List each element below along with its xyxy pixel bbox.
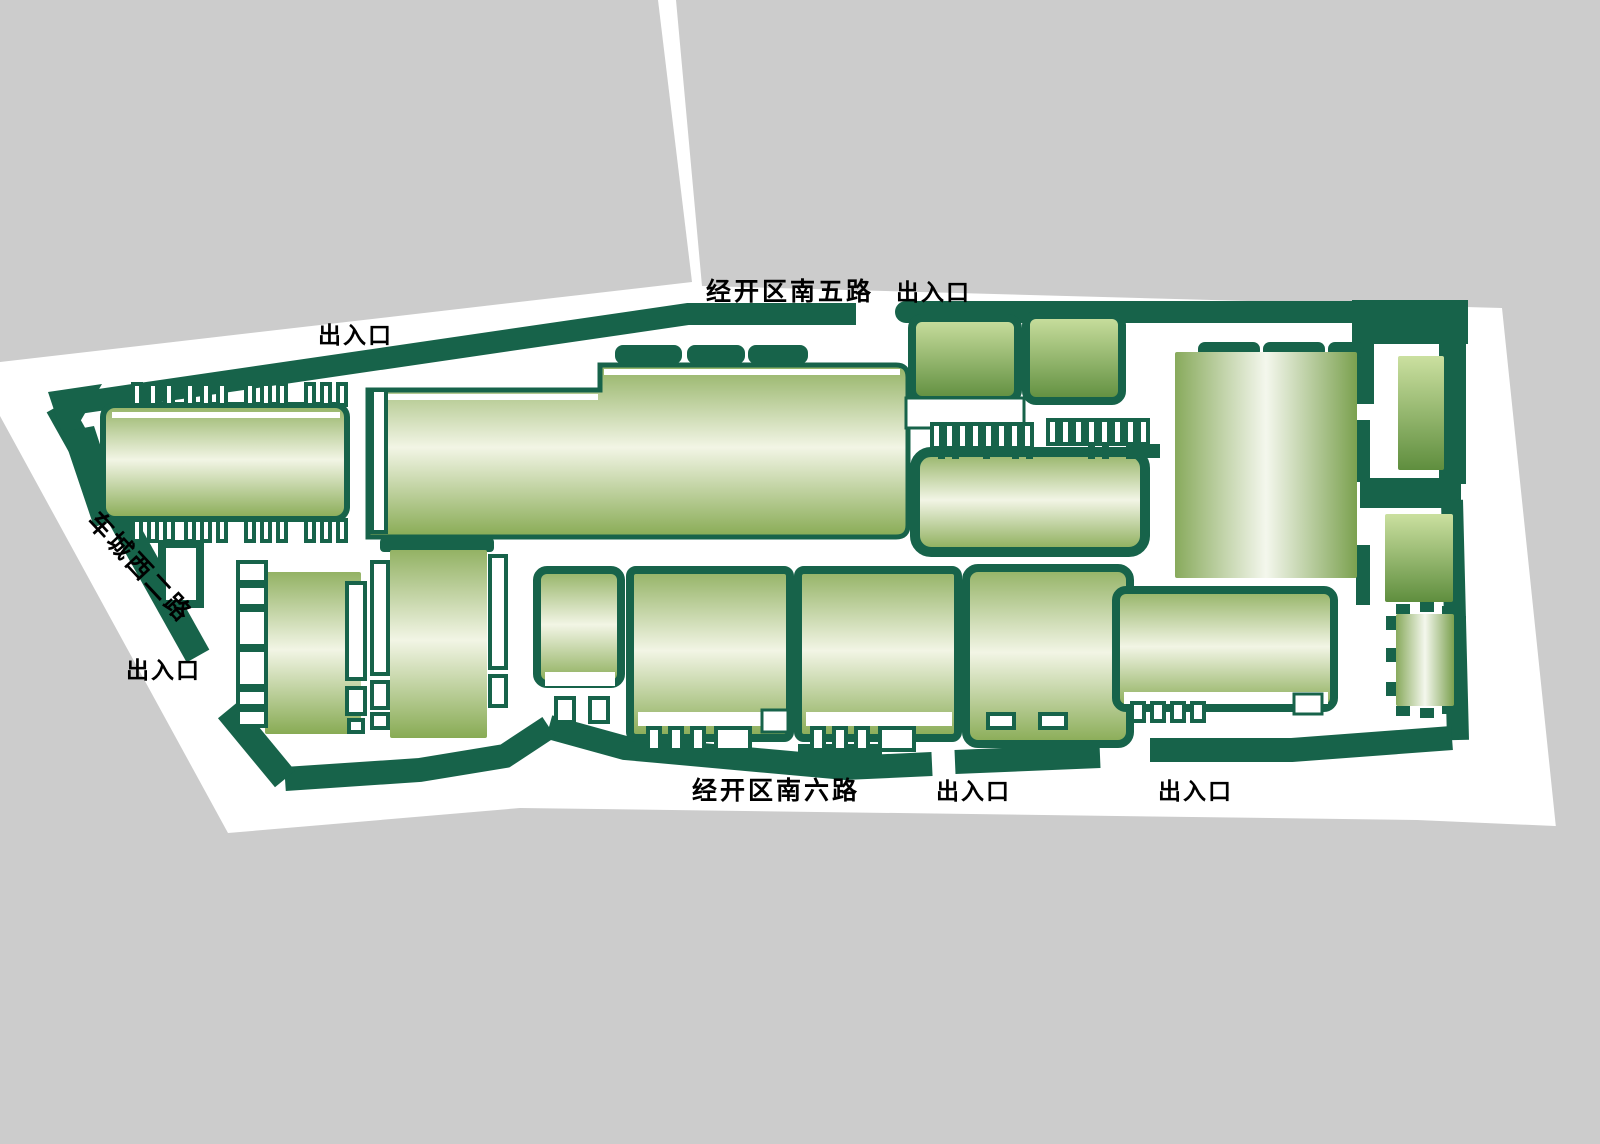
entrance-label-south-2: 出入口 (1158, 779, 1233, 805)
green-nub (1386, 682, 1396, 696)
service-box (648, 728, 660, 750)
vent-tooth (983, 446, 990, 459)
vent-tooth (1026, 446, 1033, 459)
service-box (238, 650, 266, 686)
site-map: 经开区南五路 经开区南六路 车城西二路 出入口 出入口 出入口 出入口 出入口 (0, 0, 1600, 1144)
vent-tooth (1126, 444, 1144, 459)
vent-tooth (945, 424, 954, 448)
factory-building (1396, 614, 1454, 706)
vent-tooth (165, 520, 173, 541)
service-box (1040, 714, 1066, 728)
green-patch (687, 345, 745, 364)
service-box (372, 390, 386, 532)
vent-tooth (1074, 420, 1083, 444)
green-nub (1420, 602, 1434, 612)
vent-tooth (958, 424, 967, 448)
factory-building (1116, 590, 1334, 708)
entrance-label-top: 出入口 (896, 280, 971, 306)
green-patch (1360, 478, 1442, 508)
perimeter-road (1150, 738, 1452, 750)
service-box (716, 728, 750, 750)
building-annex (604, 369, 900, 375)
service-box (692, 728, 704, 750)
vent-tooth (1023, 424, 1032, 448)
entrance-label-south-1: 出入口 (936, 779, 1011, 805)
green-nub (1396, 604, 1410, 614)
vent-tooth (186, 520, 194, 541)
building-annex (806, 712, 952, 726)
service-box (238, 690, 266, 706)
vent-tooth (278, 520, 286, 541)
vent-tooth (1010, 424, 1019, 448)
factory-building (103, 405, 347, 519)
vent-tooth (218, 520, 226, 541)
service-box (490, 676, 506, 706)
vent-tooth (262, 520, 270, 541)
factory-building (537, 570, 621, 684)
factory-building (912, 318, 1018, 400)
service-box (988, 714, 1014, 728)
vent-tooth (1139, 420, 1148, 444)
factory-building (1175, 352, 1357, 578)
green-nub (1396, 706, 1410, 716)
vent-tooth (322, 384, 330, 405)
factory-building (1385, 514, 1453, 602)
service-box (238, 562, 266, 582)
factory-building (368, 365, 908, 537)
green-nub (1456, 684, 1466, 698)
vent-tooth (338, 520, 346, 541)
building-annex (112, 412, 340, 418)
green-patch (380, 538, 494, 552)
vent-tooth (149, 384, 157, 405)
vent-tooth (165, 384, 173, 405)
factory-building (1026, 315, 1122, 401)
vent-tooth (1061, 420, 1070, 444)
vent-tooth (149, 520, 157, 541)
green-patch (1356, 545, 1370, 605)
vent-tooth (246, 384, 254, 405)
entrance-label-northwest: 出入口 (318, 323, 393, 349)
vent-tooth (133, 520, 141, 541)
green-patch (1356, 420, 1370, 482)
service-box (556, 698, 574, 722)
vent-tooth (338, 384, 346, 405)
building-annex (545, 672, 615, 686)
vent-tooth (1088, 446, 1095, 459)
service-box (238, 586, 266, 606)
vent-tooth (306, 520, 314, 541)
service-box (834, 728, 846, 750)
vent-tooth (984, 424, 993, 448)
factory-building (1398, 356, 1444, 470)
service-box (856, 728, 868, 750)
vent-tooth (938, 446, 945, 459)
vent-tooth (952, 446, 959, 459)
vent-tooth (133, 384, 141, 405)
green-nub (1456, 650, 1466, 664)
vent-tooth (262, 384, 270, 405)
vent-tooth (246, 520, 254, 541)
vent-tooth (997, 424, 1006, 448)
green-patch (748, 345, 808, 364)
service-box (1152, 703, 1164, 721)
green-nub (1386, 616, 1396, 630)
vent-tooth (1012, 446, 1019, 459)
road-label-top: 经开区南五路 (706, 277, 874, 306)
service-box (812, 728, 824, 750)
vent-tooth (218, 384, 226, 405)
vent-tooth (278, 384, 286, 405)
vent-tooth (202, 384, 210, 405)
service-box (349, 720, 363, 732)
factory-building (390, 550, 487, 738)
service-box (1192, 703, 1204, 721)
service-box (347, 583, 365, 679)
building-annex (1294, 694, 1322, 714)
vent-tooth (932, 424, 941, 448)
service-box (347, 688, 365, 714)
entrance-label-west: 出入口 (126, 658, 201, 684)
service-box (372, 682, 388, 708)
vent-tooth (1113, 420, 1122, 444)
service-box (670, 728, 682, 750)
service-box (590, 698, 608, 722)
service-box (372, 562, 388, 674)
vent-tooth (1100, 420, 1109, 444)
service-box (1132, 703, 1144, 721)
vent-tooth (322, 520, 330, 541)
service-box (238, 610, 266, 646)
service-box (1172, 703, 1184, 721)
site-map-canvas: 经开区南五路 经开区南六路 车城西二路 出入口 出入口 出入口 出入口 出入口 (0, 0, 1600, 1144)
perimeter-road (955, 756, 1100, 762)
service-box (238, 710, 266, 726)
service-box (490, 556, 506, 668)
road-label-bottom: 经开区南六路 (692, 776, 860, 805)
service-box (880, 728, 914, 750)
vent-tooth (1087, 420, 1096, 444)
vent-tooth (186, 384, 194, 405)
green-nub (1420, 708, 1434, 718)
vent-tooth (202, 520, 210, 541)
vent-tooth (1126, 420, 1135, 444)
building-annex (762, 710, 788, 732)
vent-tooth (971, 424, 980, 448)
factory-building (915, 452, 1145, 552)
green-nub (1386, 648, 1396, 662)
vent-tooth (306, 384, 314, 405)
vent-tooth (1048, 420, 1057, 444)
building-annex (374, 394, 598, 400)
green-nub (1456, 616, 1466, 630)
green-patch (615, 345, 682, 364)
vent-tooth (1102, 446, 1109, 459)
service-box (372, 714, 388, 728)
